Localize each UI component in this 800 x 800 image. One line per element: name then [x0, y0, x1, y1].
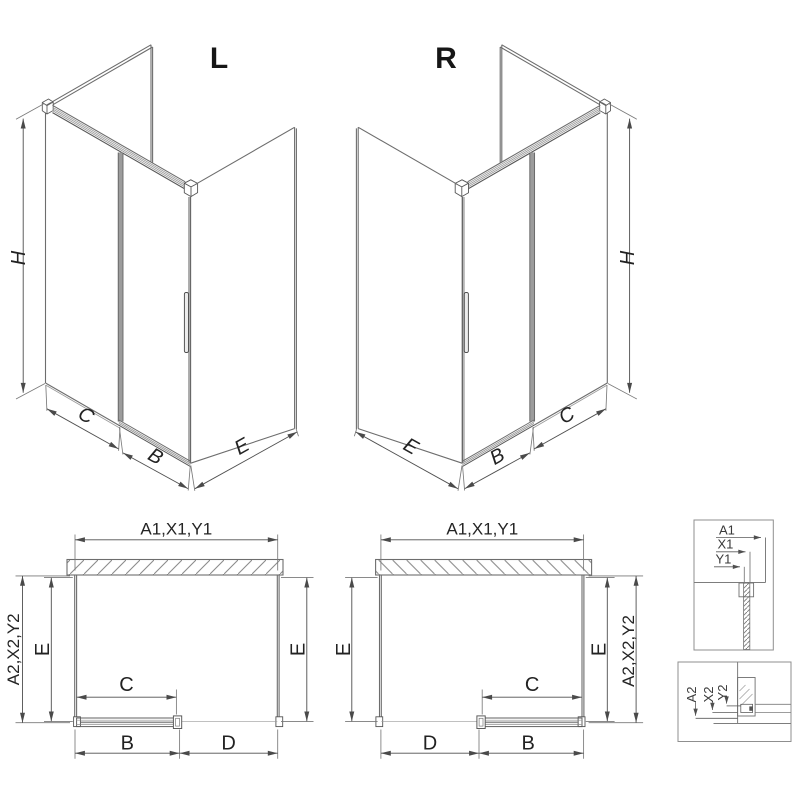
plan-l-depth-left-label: E — [32, 643, 54, 656]
detail2-x2-label: X2 — [701, 687, 716, 703]
dim-label-side-l: E — [231, 434, 254, 460]
shower-enclosure-diagram: L H C B E R H E B C A1,X1,Y1 A2,X2,Y2 E … — [0, 0, 800, 800]
plan-l-outer-depth-label: A2,X2,Y2 — [4, 613, 23, 685]
plan-r-outer-depth-label: A2,X2,Y2 — [619, 615, 638, 687]
detail1-y1-label: Y1 — [716, 552, 732, 567]
dim-label-side-r: E — [400, 434, 423, 460]
view-label-left: L — [210, 42, 228, 75]
plan-l-depth-right-label: E — [288, 643, 310, 656]
dim-label-door-l: B — [144, 444, 166, 470]
detail1-a1-label: A1 — [719, 522, 735, 537]
plan-r-width-label: A1,X1,Y1 — [446, 520, 518, 539]
plan-view-right: A1,X1,Y1 A2,X2,Y2 E E C D B — [333, 520, 643, 759]
plan-l-door-travel-label: C — [119, 674, 133, 696]
plan-r-bottom-right-label: B — [522, 733, 535, 755]
plan-r-door-travel-label: C — [525, 674, 539, 696]
detail-floor-profile: A2 X2 Y2 — [678, 662, 791, 742]
plan-view-left: A1,X1,Y1 A2,X2,Y2 E E C B D — [4, 520, 314, 759]
dim-label-fixed-l: C — [74, 403, 98, 430]
plan-r-bottom-left-label: D — [423, 733, 437, 755]
dim-label-height-r: H — [617, 250, 639, 265]
glass-panel-section — [744, 583, 750, 650]
detail-wall-profile: A1 X1 Y1 — [694, 520, 773, 650]
plan-r-depth-right-label: E — [589, 643, 611, 656]
technical-drawing-page: L H C B E R H E B C A1,X1,Y1 A2,X2,Y2 E … — [0, 0, 800, 800]
dim-label-height-l: H — [8, 250, 30, 265]
detail2-y2-label: Y2 — [715, 685, 730, 701]
plan-l-width-label: A1,X1,Y1 — [140, 520, 212, 539]
view-label-right: R — [435, 42, 457, 75]
dim-label-fixed-r: C — [555, 402, 579, 429]
iso-view-left: L H C B E — [8, 42, 299, 491]
plan-l-bottom-right-label: D — [221, 733, 235, 755]
plan-l-bottom-left-label: B — [121, 733, 134, 755]
detail2-a2-label: A2 — [684, 687, 699, 703]
iso-view-right: R H E B C — [354, 42, 639, 491]
plan-r-depth-left-label: E — [333, 643, 355, 656]
detail1-x1-label: X1 — [718, 537, 734, 552]
dim-label-door-r: B — [486, 444, 508, 470]
